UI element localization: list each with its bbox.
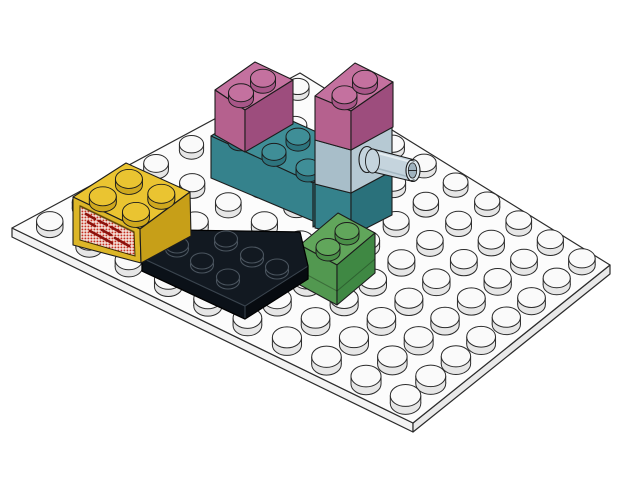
lego-scene-render <box>0 0 640 480</box>
scene-svg <box>0 0 640 480</box>
